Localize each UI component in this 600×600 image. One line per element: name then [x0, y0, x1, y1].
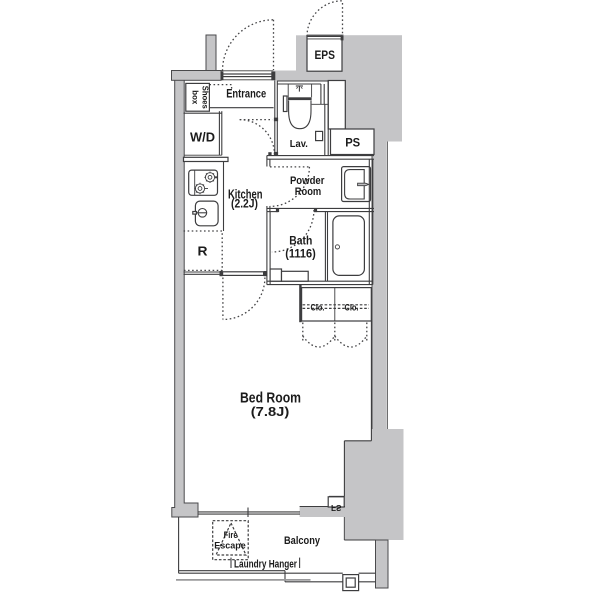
svg-text:Fire: Fire	[224, 530, 238, 541]
svg-text:(7.8J): (7.8J)	[251, 405, 290, 419]
svg-text:(1116): (1116)	[285, 248, 316, 260]
svg-text:R: R	[198, 244, 208, 258]
svg-text:PS: PS	[345, 136, 360, 150]
svg-text:Balcony: Balcony	[284, 535, 321, 547]
svg-text:EPS: EPS	[314, 50, 335, 62]
svg-text:Clo.: Clo.	[311, 303, 325, 314]
svg-text:box: box	[191, 90, 201, 104]
svg-text:Clo.: Clo.	[345, 303, 359, 314]
svg-text:(2.2J): (2.2J)	[231, 198, 258, 210]
svg-text:Room: Room	[295, 186, 322, 198]
svg-text:Escape: Escape	[214, 541, 246, 552]
svg-text:Bath: Bath	[289, 233, 312, 247]
svg-text:Shoes: Shoes	[200, 86, 210, 109]
svg-text:FS: FS	[331, 503, 342, 512]
svg-text:Lav.: Lav.	[290, 138, 308, 150]
svg-text:W/D: W/D	[190, 131, 215, 145]
svg-text:Laundry Hanger: Laundry Hanger	[234, 559, 298, 571]
svg-text:Entrance: Entrance	[226, 89, 266, 101]
